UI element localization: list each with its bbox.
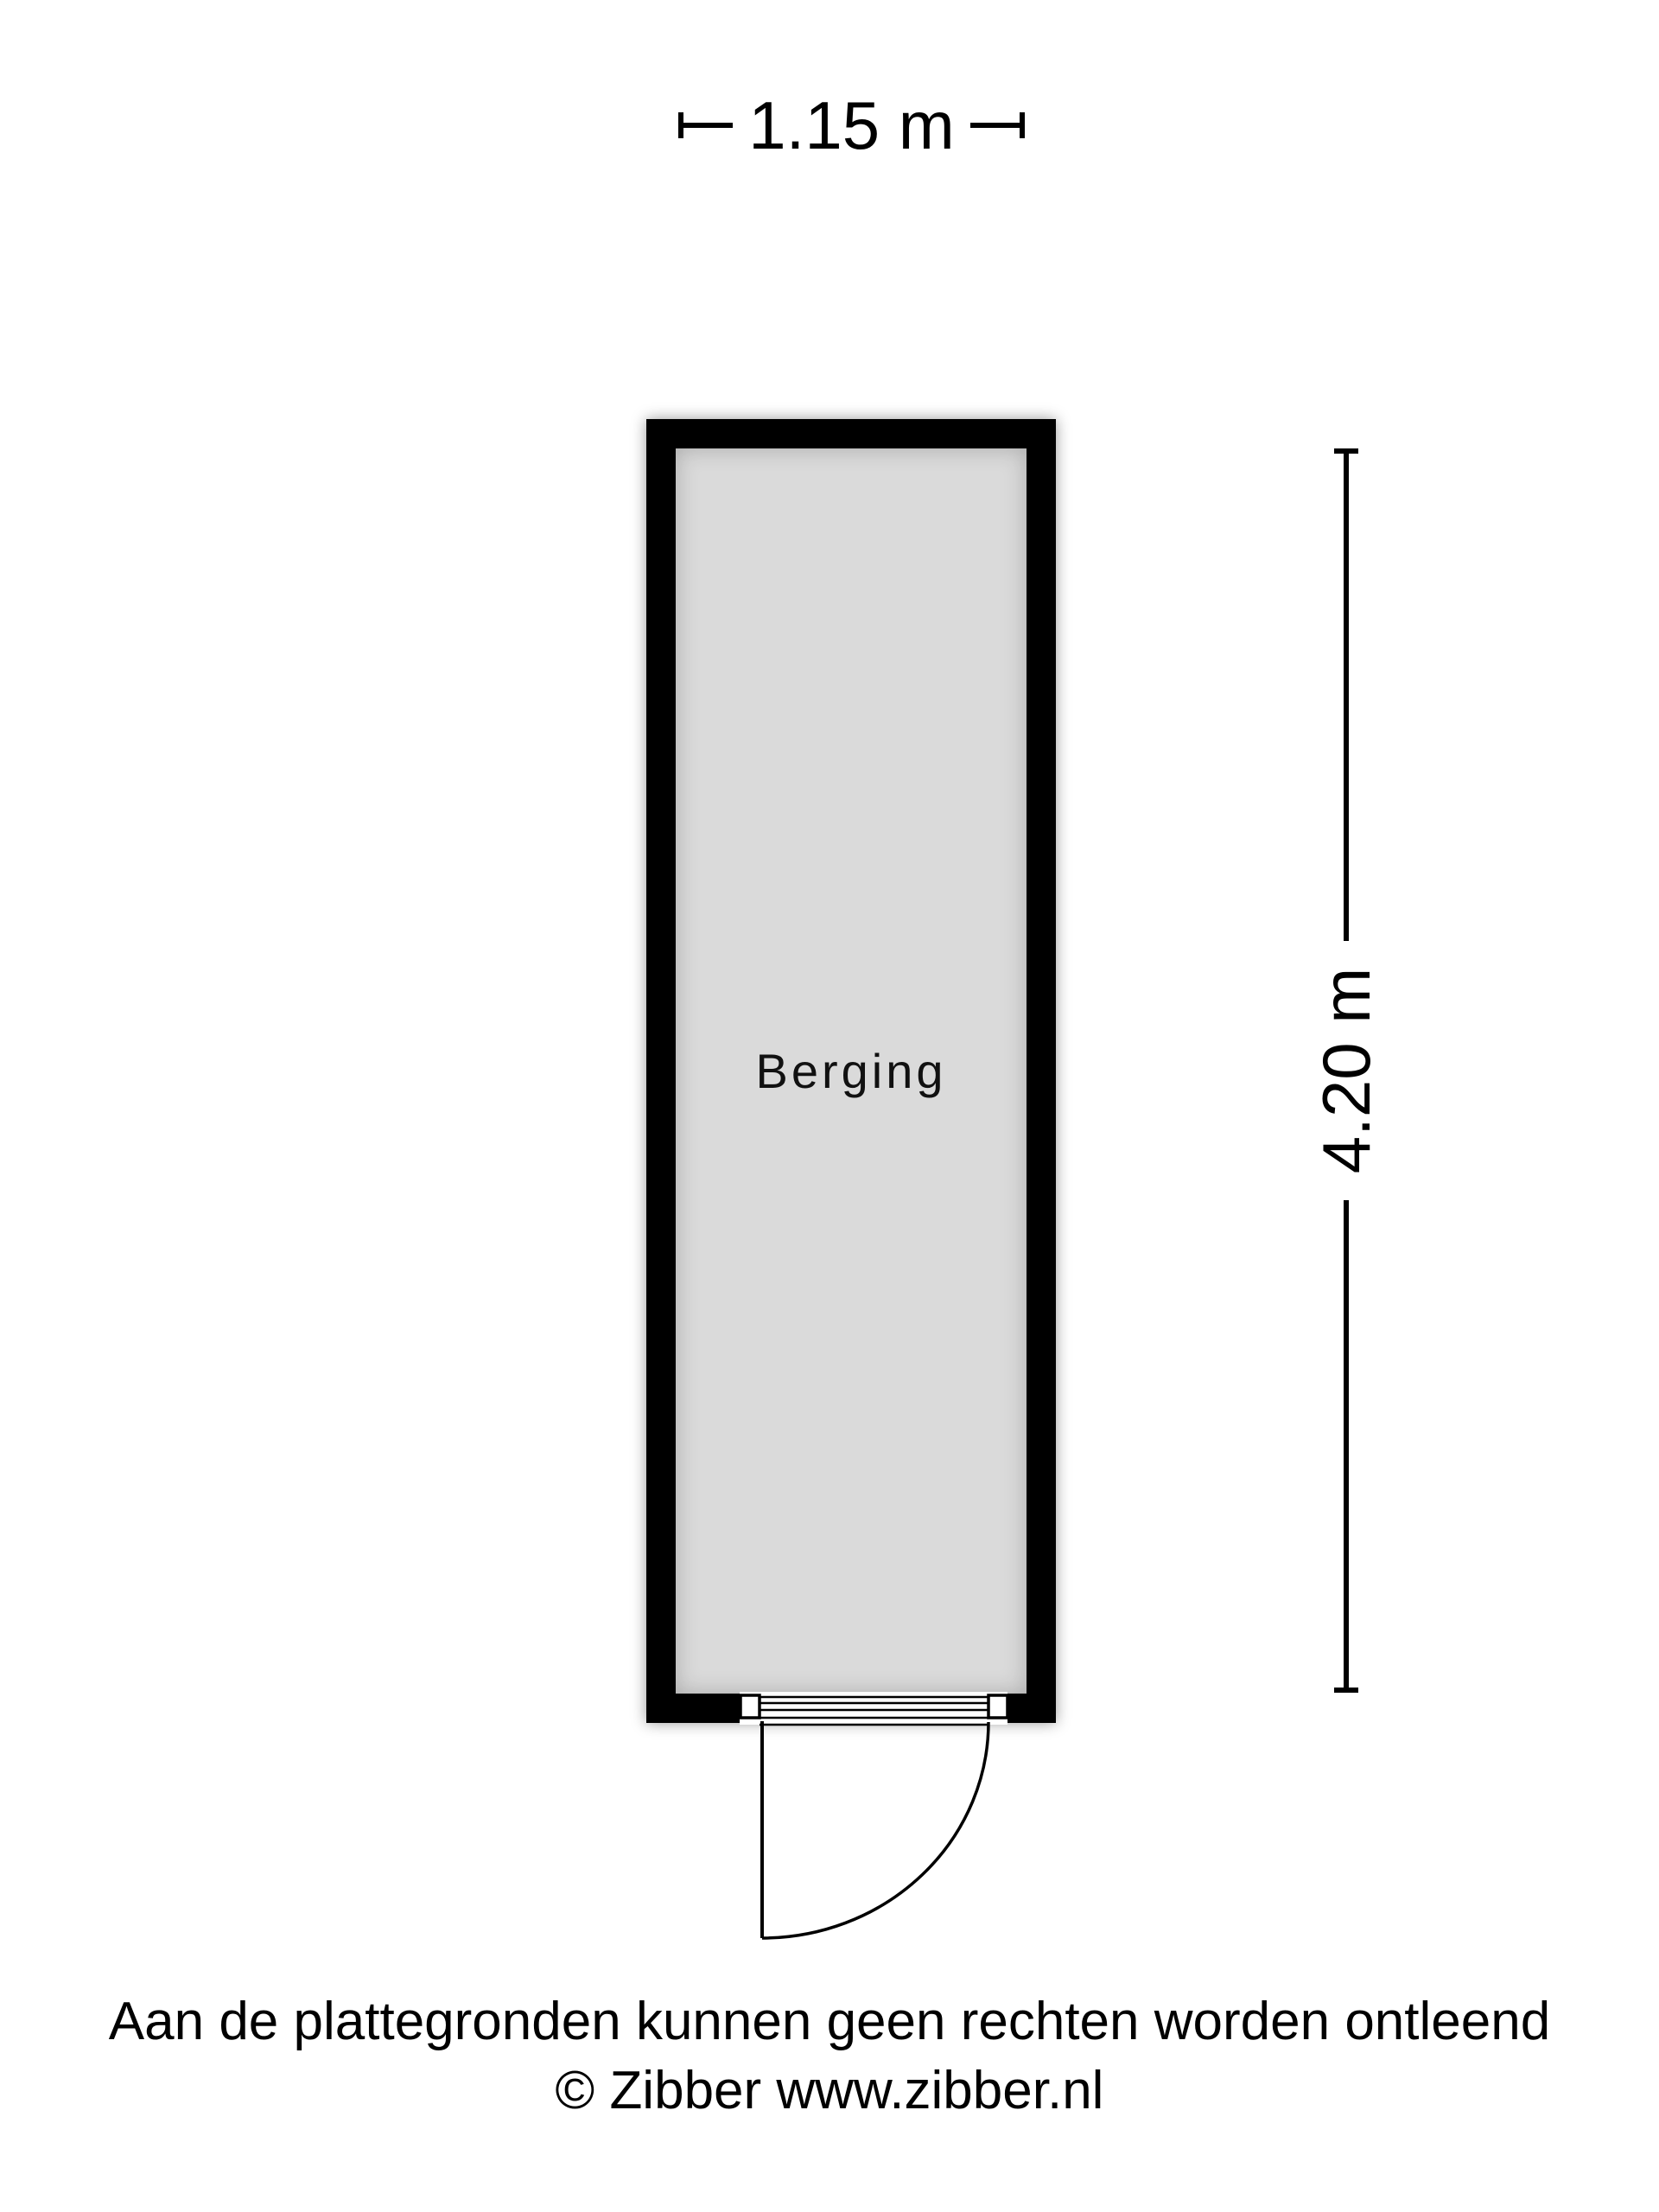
height-dimension-line-bottom — [1344, 1200, 1349, 1693]
dimension-cap-right — [1020, 112, 1025, 138]
room-label: Berging — [755, 1043, 946, 1099]
width-dimension-label: 1.15 m — [733, 91, 969, 160]
height-dimension-label: 4.20 m — [1312, 941, 1381, 1200]
footer-copyright: © Zibber www.zibber.nl — [0, 2056, 1659, 2126]
door-symbol — [726, 1685, 1141, 1979]
door-jamb-right-icon — [988, 1695, 1007, 1718]
height-dimension-line-top — [1344, 448, 1349, 941]
dimension-line-right — [970, 123, 1020, 128]
door-threshold — [760, 1697, 988, 1725]
footer: Aan de plattegronden kunnen geen rechten… — [0, 1987, 1659, 2126]
door-jamb-left-icon — [741, 1695, 760, 1718]
room-floor: Berging — [676, 448, 1027, 1694]
floorplan-page: 1.15 m Berging 4.20 m Aan de p — [0, 0, 1659, 2212]
width-dimension: 1.15 m — [678, 91, 1025, 160]
room-outline: Berging — [646, 419, 1056, 1723]
footer-disclaimer: Aan de plattegronden kunnen geen rechten… — [0, 1987, 1659, 2056]
dimension-line-left — [683, 123, 733, 128]
door-swing-arc — [762, 1722, 988, 1938]
height-dimension-cap-bottom — [1334, 1688, 1358, 1693]
